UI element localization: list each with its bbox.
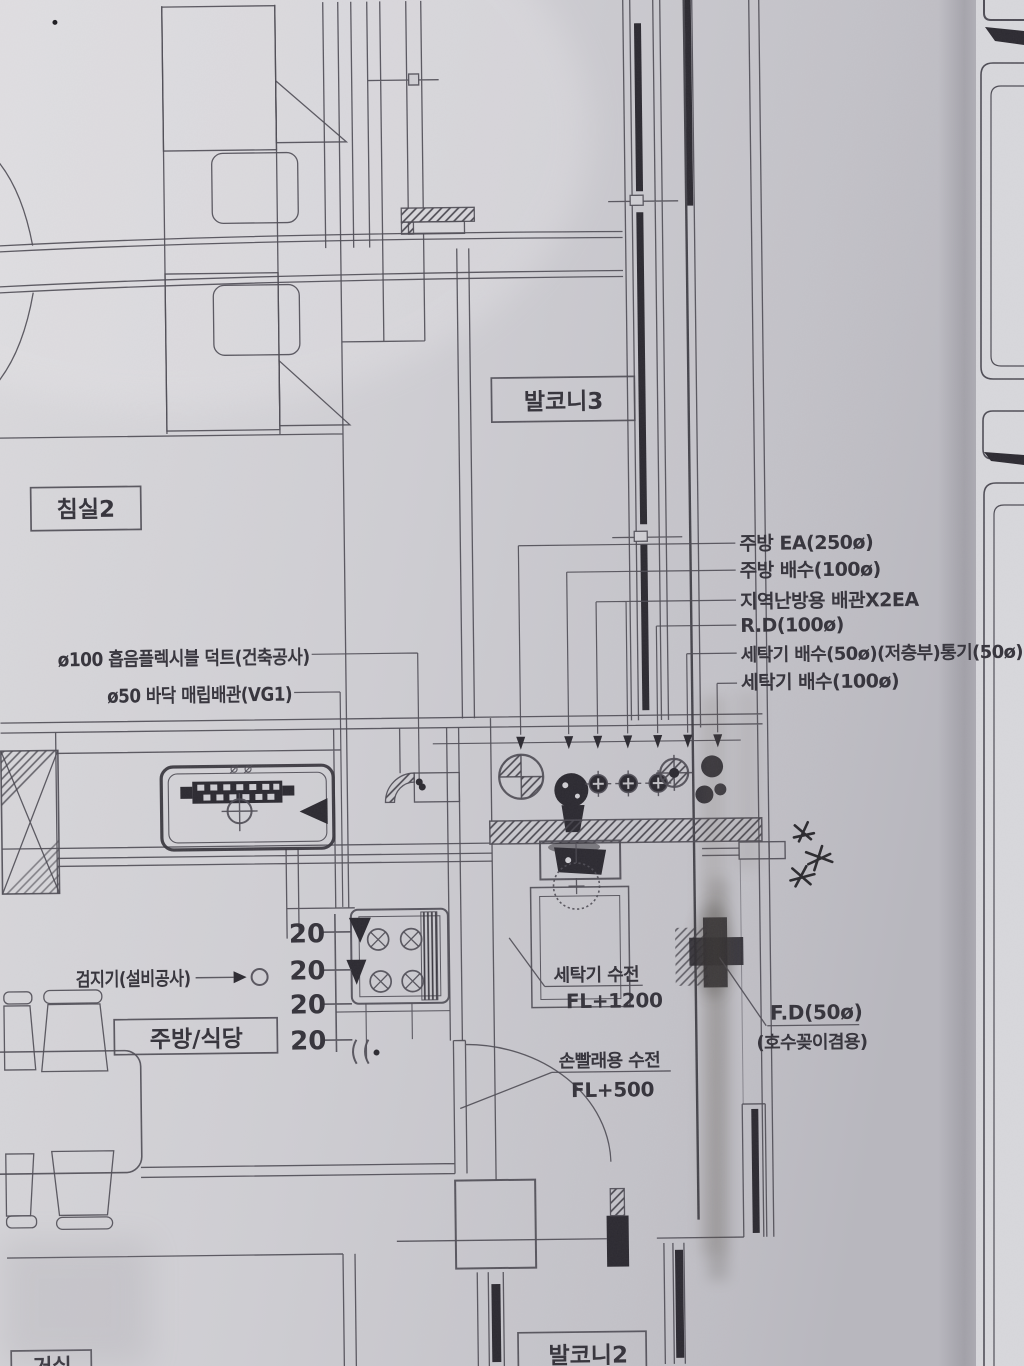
photographed-floor-plan: 발코니3 침실2 주방/식당 발코니2 거실 주방 EA(250ø) 주방 배수…	[0, 0, 1024, 1366]
paper-grain-overlay	[0, 0, 1024, 1366]
plan-canvas: 발코니3 침실2 주방/식당 발코니2 거실 주방 EA(250ø) 주방 배수…	[0, 0, 1024, 1366]
